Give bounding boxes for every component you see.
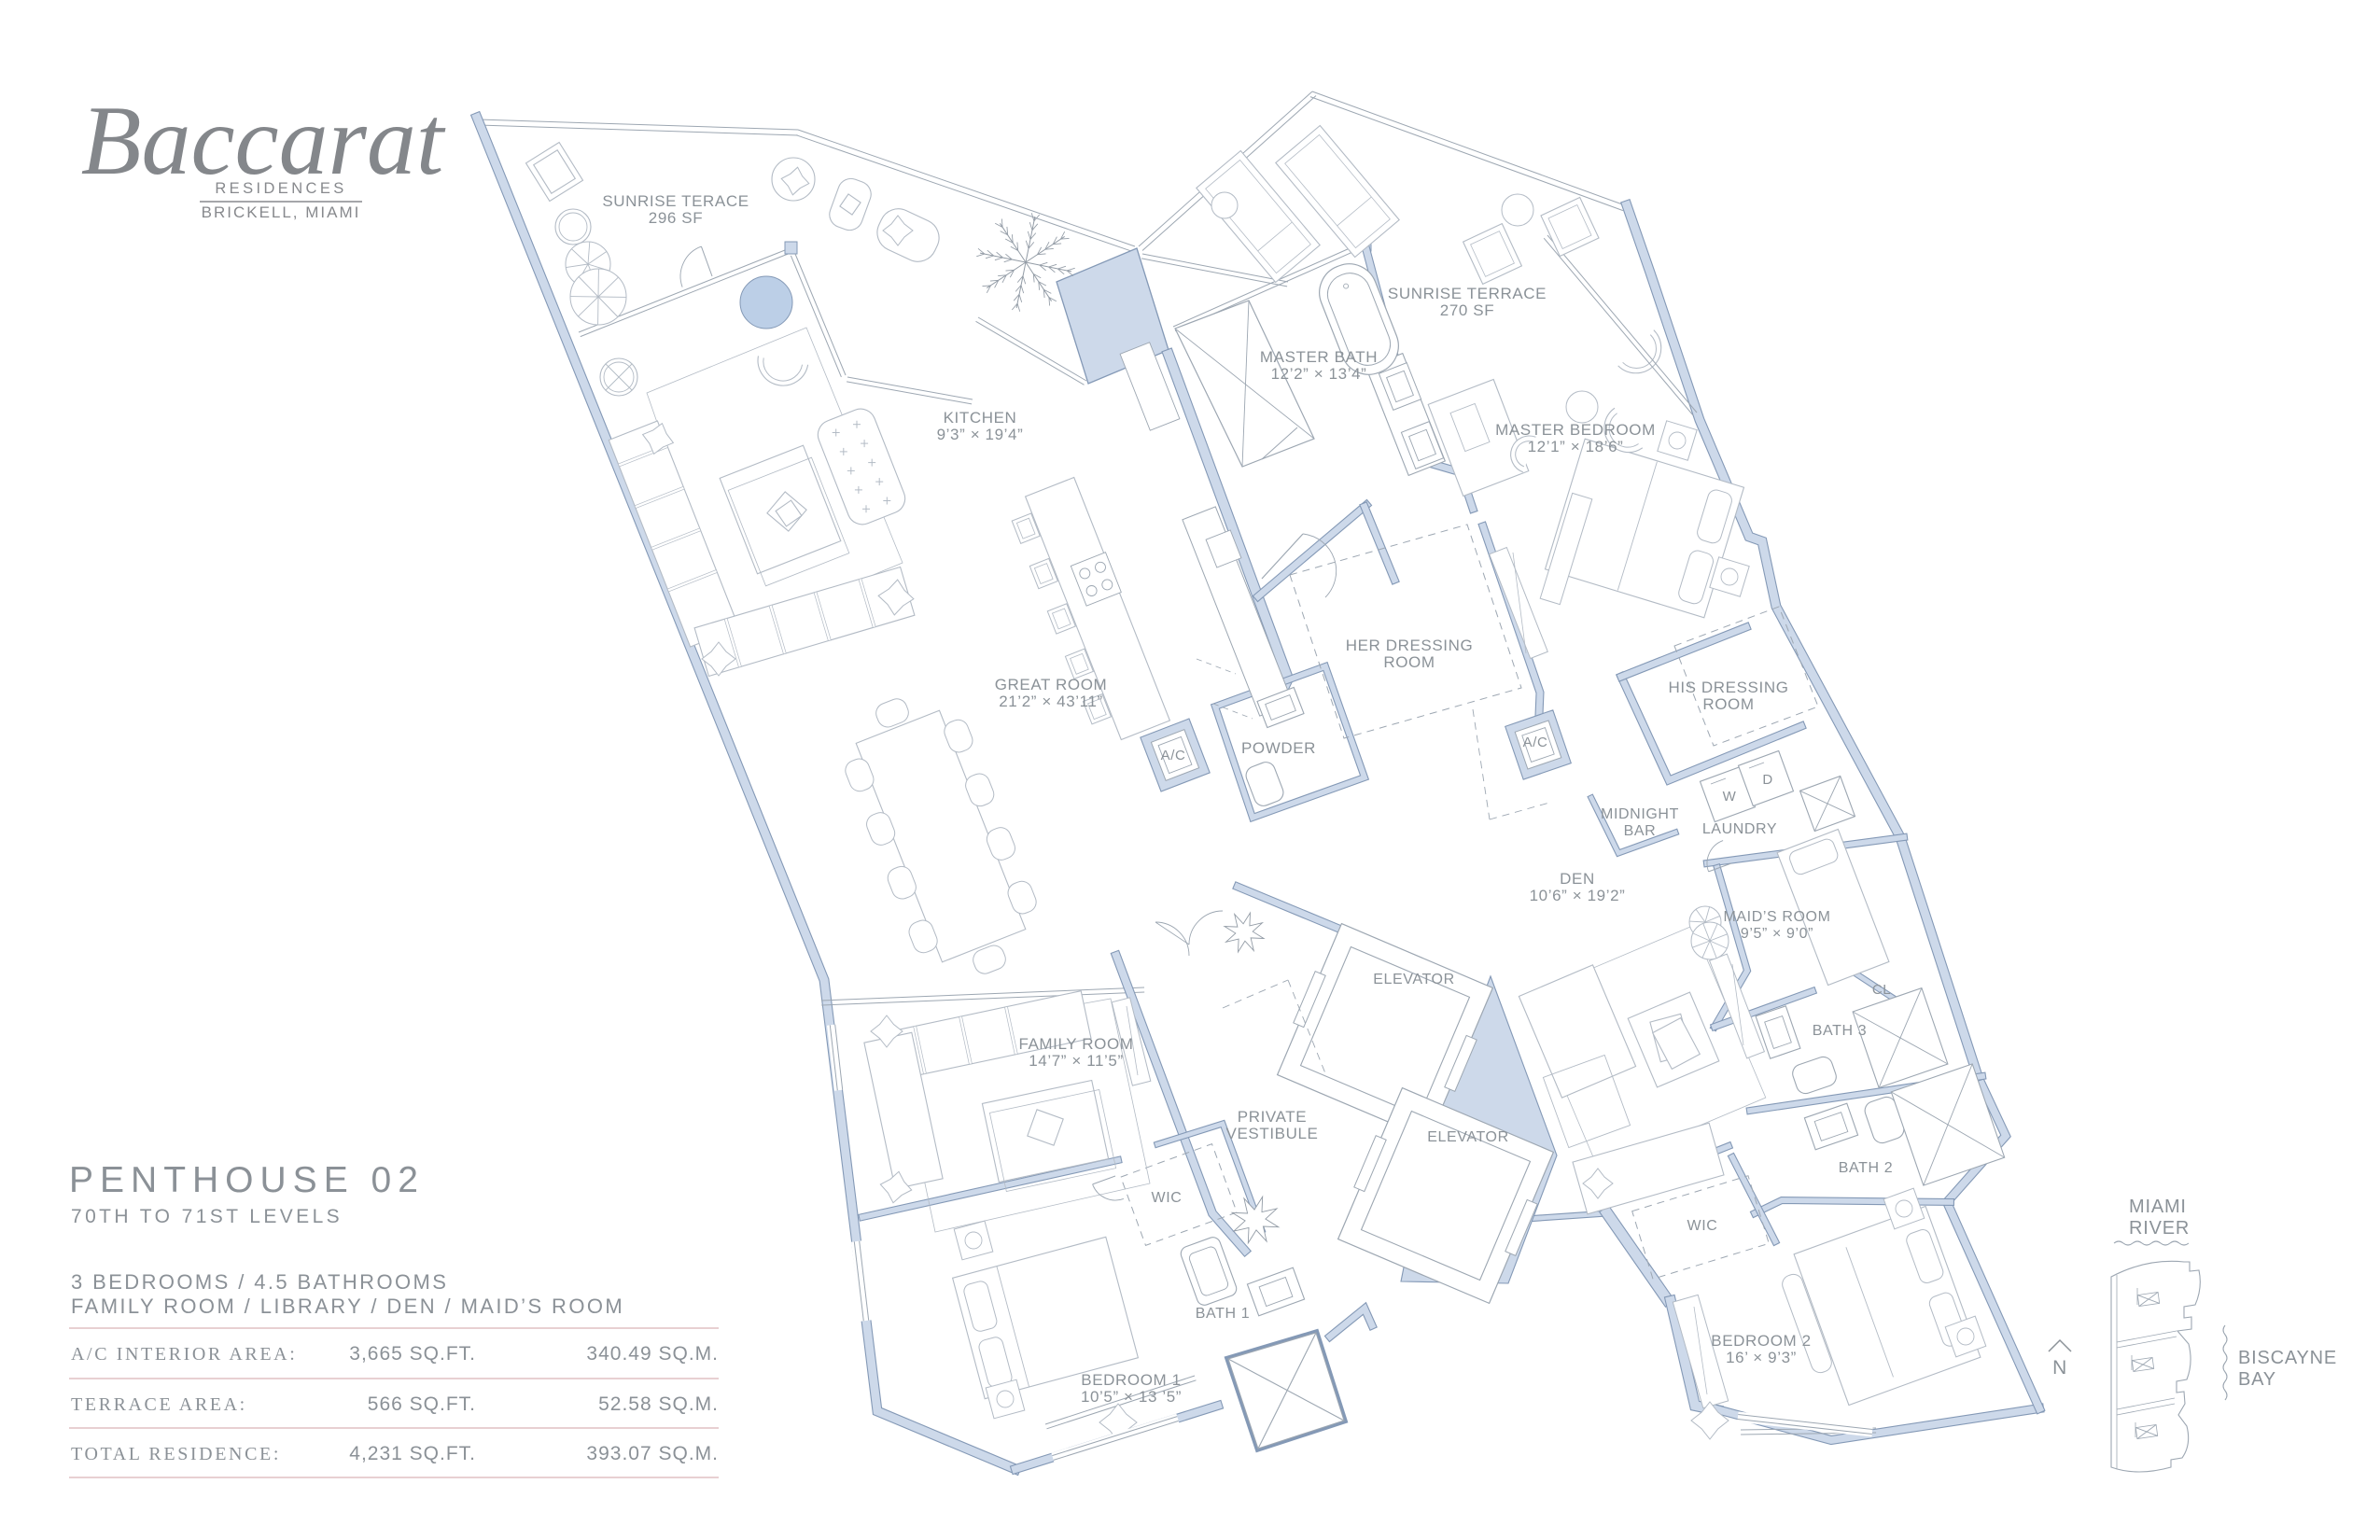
- svg-text:TERRACE AREA:: TERRACE AREA:: [71, 1394, 247, 1415]
- svg-text:BISCAYNE: BISCAYNE: [2238, 1348, 2337, 1368]
- svg-text:ELEVATOR: ELEVATOR: [1373, 972, 1455, 987]
- svg-text:3 BEDROOMS / 4.5 BATHROOMS: 3 BEDROOMS / 4.5 BATHROOMS: [71, 1270, 448, 1294]
- svg-text:12’1” × 18’6”: 12’1” × 18’6”: [1528, 438, 1624, 455]
- svg-text:A/C INTERIOR AREA:: A/C INTERIOR AREA:: [71, 1344, 297, 1365]
- svg-text:ELEVATOR: ELEVATOR: [1427, 1129, 1509, 1145]
- svg-text:FAMILY ROOM / LIBRARY / DEN /: FAMILY ROOM / LIBRARY / DEN / MAID’S ROO…: [71, 1295, 624, 1318]
- svg-text:10’5” × 13 ’5”: 10’5” × 13 ’5”: [1081, 1388, 1182, 1406]
- svg-text:RESIDENCES: RESIDENCES: [215, 180, 346, 197]
- svg-text:D: D: [1762, 772, 1772, 788]
- svg-text:FAMILY ROOM: FAMILY ROOM: [1018, 1035, 1133, 1053]
- svg-text:9’5” × 9’0”: 9’5” × 9’0”: [1741, 926, 1813, 942]
- svg-text:RIVER: RIVER: [2129, 1218, 2190, 1239]
- svg-text:MASTER BATH: MASTER BATH: [1260, 348, 1378, 366]
- svg-text:VESTIBULE: VESTIBULE: [1226, 1125, 1319, 1142]
- svg-text:566 SQ.FT.: 566 SQ.FT.: [368, 1393, 476, 1415]
- svg-text:393.07 SQ.M.: 393.07 SQ.M.: [586, 1443, 719, 1464]
- svg-text:340.49 SQ.M.: 340.49 SQ.M.: [586, 1343, 719, 1365]
- svg-text:12’2” × 13’4”: 12’2” × 13’4”: [1271, 365, 1367, 383]
- svg-text:TOTAL RESIDENCE:: TOTAL RESIDENCE:: [71, 1444, 281, 1464]
- svg-text:WIC: WIC: [1152, 1190, 1183, 1206]
- svg-text:PENTHOUSE 02: PENTHOUSE 02: [69, 1160, 425, 1200]
- svg-text:LAUNDRY: LAUNDRY: [1702, 821, 1777, 837]
- svg-text:Baccarat: Baccarat: [81, 86, 446, 195]
- svg-text:BRICKELL, MIAMI: BRICKELL, MIAMI: [202, 203, 361, 221]
- svg-text:MASTER BEDROOM: MASTER BEDROOM: [1495, 421, 1656, 439]
- svg-text:GREAT ROOM: GREAT ROOM: [995, 676, 1108, 693]
- svg-text:BATH 3: BATH 3: [1813, 1023, 1867, 1039]
- svg-text:SUNRISE TERACE: SUNRISE TERACE: [602, 192, 749, 210]
- svg-text:KITCHEN: KITCHEN: [944, 409, 1017, 427]
- svg-text:BATH 2: BATH 2: [1839, 1160, 1893, 1176]
- svg-text:HIS DRESSING: HIS DRESSING: [1668, 679, 1788, 696]
- svg-text:BEDROOM 1: BEDROOM 1: [1081, 1371, 1181, 1389]
- svg-text:4,231 SQ.FT.: 4,231 SQ.FT.: [349, 1443, 476, 1464]
- svg-text:POWDER: POWDER: [1241, 739, 1316, 757]
- svg-text:A/C: A/C: [1161, 748, 1186, 763]
- svg-text:3,665 SQ.FT.: 3,665 SQ.FT.: [349, 1343, 476, 1365]
- svg-text:BEDROOM 2: BEDROOM 2: [1711, 1332, 1811, 1350]
- svg-text:70TH TO 71ST LEVELS: 70TH TO 71ST LEVELS: [71, 1206, 343, 1227]
- svg-text:MIDNIGHT: MIDNIGHT: [1601, 806, 1679, 822]
- svg-text:BATH 1: BATH 1: [1196, 1306, 1250, 1322]
- svg-text:52.58 SQ.M.: 52.58 SQ.M.: [598, 1393, 719, 1415]
- svg-text:14’7” × 11’5”: 14’7” × 11’5”: [1029, 1052, 1124, 1070]
- svg-text:A/C: A/C: [1523, 735, 1548, 750]
- svg-text:BAR: BAR: [1624, 823, 1657, 839]
- svg-text:9’3” × 19’4”: 9’3” × 19’4”: [937, 426, 1024, 443]
- svg-text:W: W: [1723, 789, 1737, 805]
- svg-text:N: N: [2052, 1357, 2067, 1379]
- svg-text:DEN: DEN: [1560, 870, 1595, 888]
- svg-text:SUNRISE TERRACE: SUNRISE TERRACE: [1388, 285, 1547, 302]
- svg-text:CL: CL: [1872, 982, 1891, 998]
- svg-text:296 SF: 296 SF: [649, 209, 703, 227]
- svg-text:16’ × 9’3”: 16’ × 9’3”: [1726, 1349, 1797, 1366]
- svg-text:MAID’S ROOM: MAID’S ROOM: [1723, 909, 1830, 925]
- svg-text:PRIVATE: PRIVATE: [1238, 1108, 1307, 1126]
- svg-text:270 SF: 270 SF: [1440, 301, 1494, 319]
- svg-text:MIAMI: MIAMI: [2129, 1197, 2187, 1217]
- svg-text:BAY: BAY: [2238, 1369, 2276, 1390]
- svg-text:ROOM: ROOM: [1702, 695, 1754, 713]
- svg-text:WIC: WIC: [1687, 1218, 1718, 1234]
- svg-text:ROOM: ROOM: [1383, 653, 1435, 671]
- svg-text:21’2” × 43’11”: 21’2” × 43’11”: [999, 693, 1103, 710]
- svg-text:HER DRESSING: HER DRESSING: [1346, 637, 1474, 654]
- svg-text:10’6” × 19’2”: 10’6” × 19’2”: [1530, 887, 1626, 904]
